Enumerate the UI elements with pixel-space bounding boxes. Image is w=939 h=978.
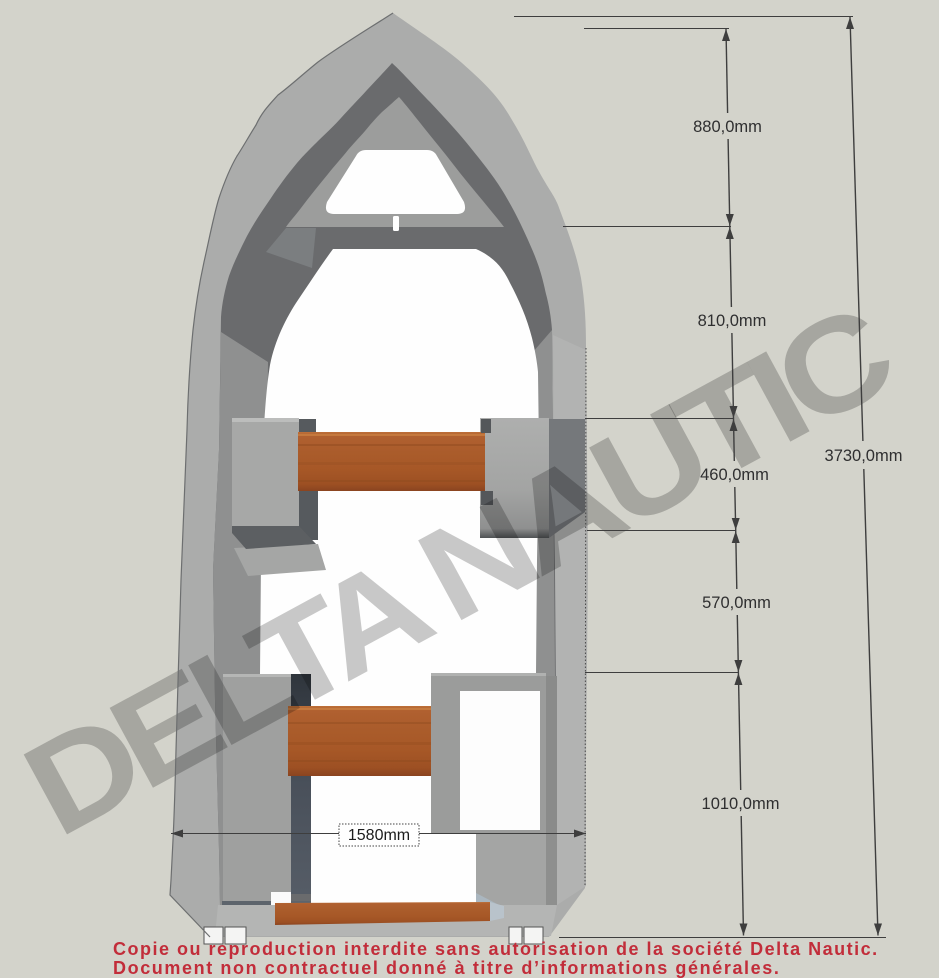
svg-text:Document non contractuel donné: Document non contractuel donné à titre d… [113, 958, 780, 978]
svg-text:1580mm: 1580mm [348, 827, 410, 844]
svg-text:Copie ou reproduction interdit: Copie ou reproduction interdite sans aut… [113, 939, 879, 959]
svg-text:1010,0mm: 1010,0mm [702, 795, 780, 813]
svg-text:3730,0mm: 3730,0mm [825, 447, 903, 465]
svg-text:810,0mm: 810,0mm [698, 312, 767, 330]
svg-text:570,0mm: 570,0mm [702, 594, 771, 612]
svg-text:880,0mm: 880,0mm [693, 118, 762, 136]
svg-text:460,0mm: 460,0mm [700, 466, 769, 484]
